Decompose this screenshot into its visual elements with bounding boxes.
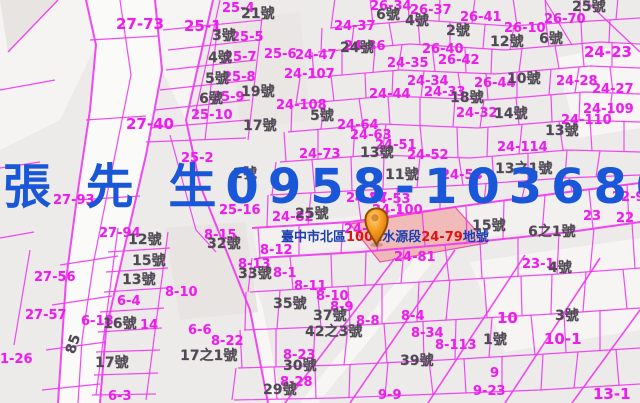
house-number-label: 6之1號 bbox=[528, 225, 575, 240]
contact-watermark: 張 先 生0958-103680 bbox=[3, 163, 640, 211]
house-number-label: 6號 bbox=[539, 32, 563, 47]
parcel-number-label: 27-40 bbox=[126, 117, 174, 133]
house-number-label: 12號 bbox=[490, 35, 523, 50]
house-number-label: 30號 bbox=[283, 359, 316, 374]
house-number-label: 13號 bbox=[122, 273, 155, 288]
parcel-number-label: 27-73 bbox=[116, 17, 164, 33]
house-number-label: 6號 bbox=[199, 92, 223, 107]
parcel-number-label: 8-4 bbox=[401, 310, 425, 324]
parcel-number-label: 9-23 bbox=[473, 385, 506, 399]
house-number-label: 25號 bbox=[572, 0, 605, 15]
house-number-label: 3號 bbox=[212, 29, 236, 44]
house-number-label: 2號 bbox=[446, 24, 470, 39]
parcel-number-label: 27-57 bbox=[25, 309, 67, 323]
house-number-label: 24號 bbox=[340, 41, 373, 56]
parcel-number-label: 6-6 bbox=[188, 324, 212, 338]
parcel-number-label: 8-113 bbox=[435, 339, 477, 353]
cadastral-map-canvas[interactable]: 27-7325-125-426-3426-3726-4126-1026-7024… bbox=[0, 0, 640, 403]
house-number-label: 15號 bbox=[132, 254, 165, 269]
parcel-number-label: 14 bbox=[140, 319, 158, 333]
house-number-label: 19號 bbox=[241, 85, 274, 100]
parcel-number-label: 26-42 bbox=[438, 54, 480, 68]
parcel-number-label: 24-35 bbox=[387, 57, 429, 71]
house-number-label: 32號 bbox=[207, 237, 240, 252]
parcel-number-label: 1-26 bbox=[0, 353, 33, 367]
parcel-number-label: 25-6 bbox=[264, 48, 297, 62]
parcel-number-label: 8-12 bbox=[260, 244, 293, 258]
parcel-number-label: 24-114 bbox=[497, 141, 548, 155]
parcel-number-label: 8-1 bbox=[273, 267, 297, 281]
parcel-number-label: 9 bbox=[490, 367, 499, 381]
house-number-label: 17號 bbox=[95, 356, 128, 371]
parcel-number-label: 25-10 bbox=[191, 109, 233, 123]
house-number-label: 18號 bbox=[450, 91, 483, 106]
parcel-number-label: 24-81 bbox=[394, 251, 436, 265]
house-number-label: 6號 bbox=[376, 8, 400, 23]
map-pin-icon[interactable] bbox=[363, 202, 390, 248]
parcel-number-label: 13-1 bbox=[593, 387, 631, 403]
house-number-label: 33號 bbox=[238, 267, 271, 282]
house-number-label: 1號 bbox=[483, 333, 507, 348]
house-number-label: 17號 bbox=[243, 119, 276, 134]
house-number-label: 3號 bbox=[555, 309, 579, 324]
house-number-label: 85 bbox=[64, 333, 84, 356]
house-number-label: 5號 bbox=[205, 72, 229, 87]
house-number-label: 4號 bbox=[208, 51, 232, 66]
house-number-label: 4號 bbox=[548, 261, 572, 276]
house-number-label: 5號 bbox=[310, 109, 334, 124]
parcel-number-label: 24-37 bbox=[334, 20, 376, 34]
address-segment: 地號 bbox=[463, 230, 489, 245]
parcel-number-label: 24-23 bbox=[584, 45, 632, 61]
parcel-number-label: 27-56 bbox=[34, 271, 76, 285]
parcel-number-label: 24-32 bbox=[456, 107, 498, 121]
house-number-label: 42之3號 bbox=[305, 325, 362, 340]
parcel-number-label: 10-1 bbox=[544, 332, 582, 348]
parcel-number-label: 26-70 bbox=[544, 13, 586, 27]
pin-body bbox=[365, 208, 387, 244]
parcel-number-label: 8-22 bbox=[211, 335, 244, 349]
house-number-label: 12號 bbox=[128, 233, 161, 248]
house-number-label: 13號 bbox=[545, 124, 578, 139]
house-number-label: 17之1號 bbox=[180, 349, 237, 364]
parcel-number-label: 8-10 bbox=[165, 286, 198, 300]
address-segment: 24-79 bbox=[421, 230, 463, 245]
house-number-label: 29號 bbox=[263, 383, 296, 398]
house-number-label: 4號 bbox=[405, 14, 429, 29]
address-segment: 臺中市北區 bbox=[281, 230, 346, 245]
parcel-number-label: 24-44 bbox=[369, 88, 411, 102]
parcel-number-label: 10 bbox=[497, 311, 518, 327]
parcel-number-label: 24-27 bbox=[592, 83, 634, 97]
house-number-label: 16號 bbox=[103, 317, 136, 332]
parcel-number-label: 9-9 bbox=[378, 389, 402, 403]
pin-center-dot bbox=[371, 214, 378, 221]
house-number-label: 35號 bbox=[273, 297, 306, 312]
parcel-number-label: 6-3 bbox=[108, 390, 132, 403]
house-number-label: 10號 bbox=[507, 72, 540, 87]
house-number-label: 21號 bbox=[241, 7, 274, 22]
parcel-number-label: 24-107 bbox=[284, 68, 335, 82]
parcel-number-label: 6-4 bbox=[117, 295, 141, 309]
house-number-label: 14號 bbox=[494, 107, 527, 122]
house-number-label: 39號 bbox=[400, 354, 433, 369]
house-number-label: 37號 bbox=[313, 309, 346, 324]
parcel-number-label: 24-47 bbox=[295, 49, 337, 63]
